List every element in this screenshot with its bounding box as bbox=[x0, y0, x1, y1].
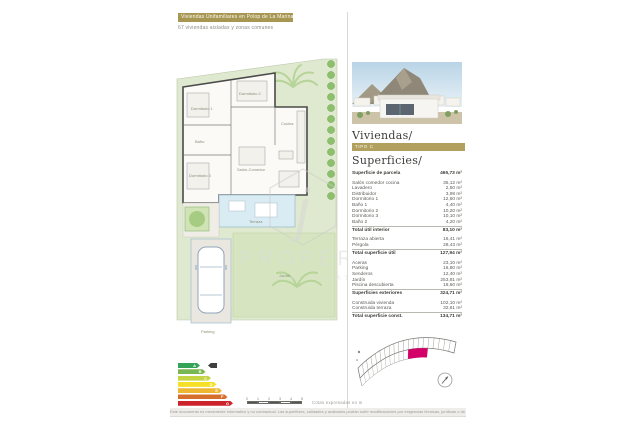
watermark-brand: PROPERTIES bbox=[239, 247, 347, 270]
surface-row: Pérgola28,43 m² bbox=[352, 243, 462, 249]
energy-bar-d: D bbox=[178, 382, 217, 387]
scale-segment bbox=[247, 401, 258, 404]
surface-row: Superficie de parcela465,73 m² bbox=[352, 171, 462, 177]
scale-segment bbox=[269, 401, 280, 404]
scale-segment bbox=[258, 401, 269, 404]
surface-row: Total útil interior83,10 m² bbox=[352, 226, 462, 234]
scale-tick-label: 2 bbox=[268, 397, 270, 401]
energy-bar-a: A bbox=[178, 363, 200, 368]
floor-plan-drawing: Dormitorio 1 Dormitorio 2 Dormitorio 3 B… bbox=[175, 55, 347, 360]
project-subtitle: 67 viviendas aisladas y zonas comunes bbox=[178, 25, 273, 31]
surface-row: Total superficie útil127,94 m² bbox=[352, 249, 462, 257]
room-label: Dormitorio 2 bbox=[239, 91, 262, 96]
scale-segment bbox=[280, 401, 291, 404]
room-label: Dormitorio 1 bbox=[191, 106, 214, 111]
photo-main-villa bbox=[378, 95, 440, 118]
energy-bar-c: C bbox=[178, 376, 211, 381]
compass-icon bbox=[438, 373, 452, 387]
scale-segment bbox=[291, 401, 302, 404]
surface-row: Baño 24,20 m² bbox=[352, 220, 462, 226]
scale-tick-label: 3 bbox=[279, 397, 281, 401]
tipo-bar: TIPO C bbox=[352, 143, 465, 151]
scale-bar: 012345 bbox=[247, 397, 305, 405]
energy-bar-g: G bbox=[178, 401, 233, 406]
scale-tick-label: 4 bbox=[290, 397, 292, 401]
superficies-heading: Superficies/ bbox=[352, 154, 422, 167]
viviendas-heading: Viviendas/ bbox=[352, 129, 413, 142]
surface-row: Piscina descubierta18,60 m² bbox=[352, 283, 462, 289]
car-icon bbox=[195, 247, 227, 313]
footer-disclaimer-band: Este documento es meramente informativo … bbox=[170, 408, 466, 417]
energy-bar-e: E bbox=[178, 388, 222, 393]
room-label: Salón-Comedor bbox=[237, 167, 266, 172]
footer-disclaimer: Este documento es meramente informativo … bbox=[170, 409, 466, 414]
energy-bar-b: B bbox=[178, 369, 206, 374]
site-plan-markers bbox=[356, 351, 360, 361]
zone-label: Terraza bbox=[249, 219, 263, 224]
site-plan bbox=[352, 322, 462, 394]
planter-tree bbox=[189, 211, 205, 227]
highlighted-lot bbox=[408, 348, 428, 359]
energy-bar-f: F bbox=[178, 394, 228, 399]
energy-rating-marker bbox=[208, 363, 217, 368]
floor-plan: Dormitorio 1 Dormitorio 2 Dormitorio 3 B… bbox=[175, 55, 347, 360]
scale-caption: Cotas expresadas en m bbox=[312, 400, 363, 405]
room-label: Baño bbox=[195, 139, 205, 144]
project-title: Viviendas Unifamiliares en Polop de La M… bbox=[181, 14, 293, 20]
watermark-tagline: REAL ESTATE bbox=[271, 275, 347, 282]
zone-label: Parking bbox=[201, 329, 215, 334]
scale-tick-label: 5 bbox=[301, 397, 303, 401]
scale-tick-label: 1 bbox=[257, 397, 259, 401]
surface-row: Construida terraza32,61 m² bbox=[352, 306, 462, 312]
room-label: Cocina bbox=[281, 121, 294, 126]
surface-row: Total superficie const.134,71 m² bbox=[352, 312, 462, 320]
document-page: Viviendas Unifamiliares en Polop de La M… bbox=[0, 0, 630, 423]
room-label: Dormitorio 3 bbox=[189, 173, 212, 178]
villa-photo bbox=[352, 62, 462, 124]
scale-tick-label: 0 bbox=[246, 397, 248, 401]
project-title-bar: Viviendas Unifamiliares en Polop de La M… bbox=[178, 13, 293, 22]
surface-row: Superficies exteriores324,71 m² bbox=[352, 289, 462, 297]
surfaces-table: Superficie de parcela465,73 m²Salón come… bbox=[352, 171, 462, 324]
column-divider bbox=[347, 12, 348, 410]
